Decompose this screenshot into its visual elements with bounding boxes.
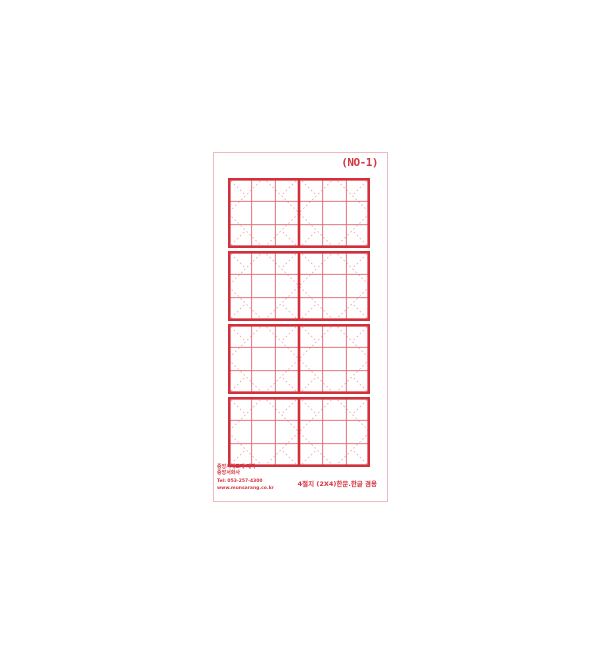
paper-number-label: (NO-1) — [341, 156, 378, 169]
publisher-name: 중앙서화사 — [217, 470, 274, 476]
publisher-phone: Tel: 053-257-4300 — [217, 479, 274, 484]
publisher-website: www.munsarang.co.kr — [217, 486, 274, 491]
calligraphy-grid — [228, 178, 370, 467]
publisher-info: 중앙서예교재 제작 중앙서화사 Tel: 053-257-4300 www.mu… — [217, 464, 274, 491]
product-spec-label: 4절지 (2X4)한문.한글 겸용 — [298, 478, 377, 488]
calligraphy-practice-paper: (NO-1) 중앙서예교재 제작 중앙서화사 Tel: 053-257-4300… — [213, 152, 388, 502]
